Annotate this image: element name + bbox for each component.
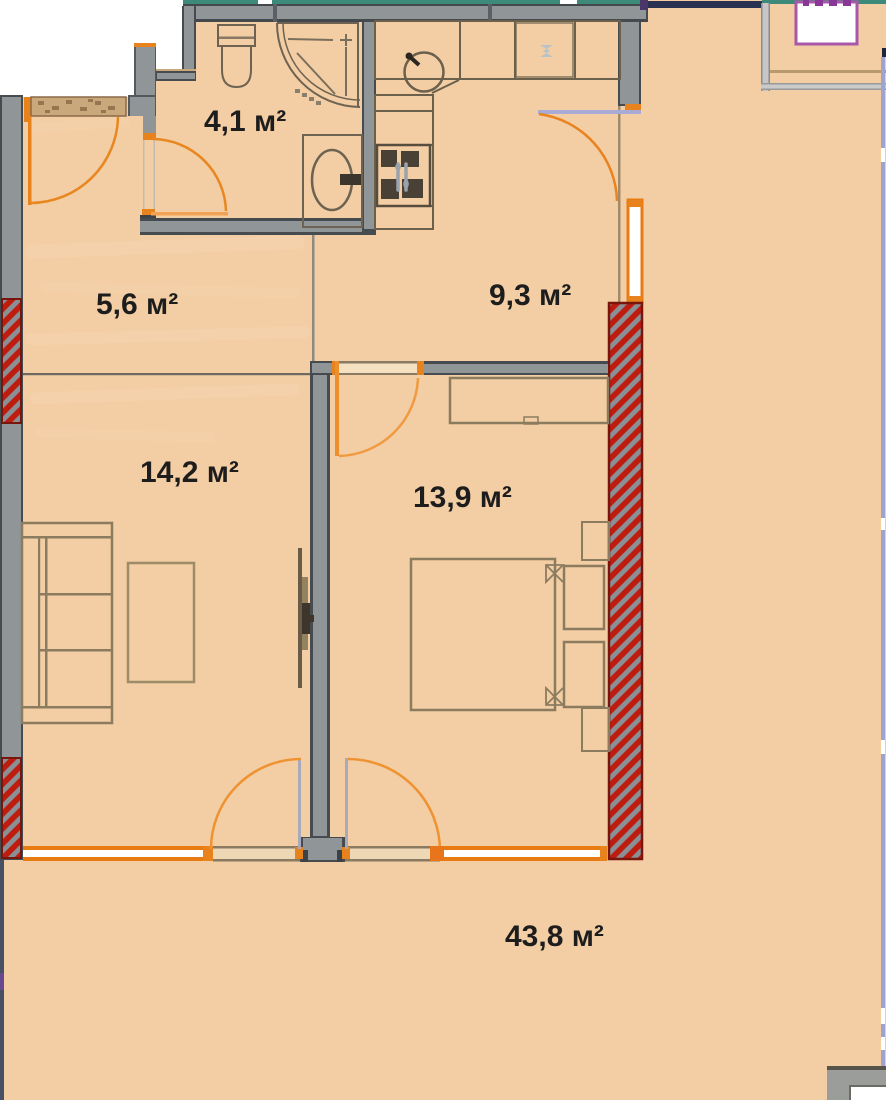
svg-text:14,2 м²: 14,2 м² (140, 456, 239, 489)
svg-text:4,1 м²: 4,1 м² (204, 105, 286, 138)
svg-text:5,6 м²: 5,6 м² (96, 288, 178, 321)
svg-text:13,9 м²: 13,9 м² (413, 481, 512, 514)
svg-text:43,8 м²: 43,8 м² (505, 920, 604, 953)
svg-text:9,3 м²: 9,3 м² (489, 279, 571, 312)
